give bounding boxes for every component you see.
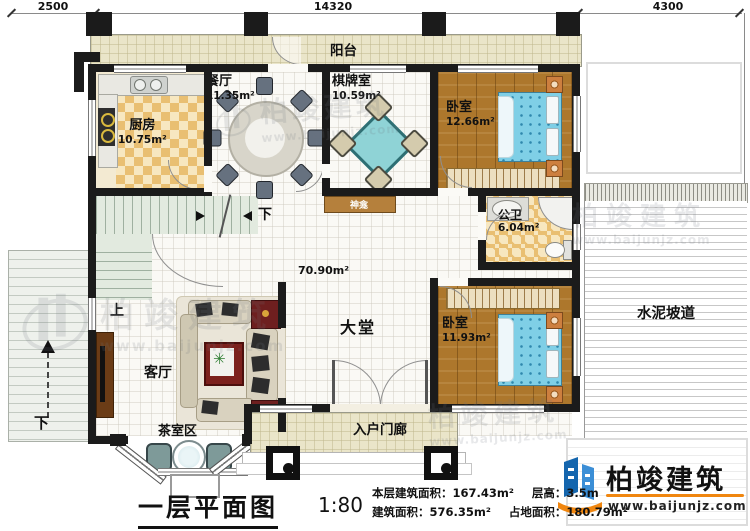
porch-column bbox=[424, 446, 458, 480]
porch-column-dot bbox=[283, 463, 294, 474]
total-area-label: 建筑面积： bbox=[372, 505, 430, 519]
wall bbox=[478, 262, 580, 270]
height-value: 3.5m bbox=[566, 486, 598, 500]
window bbox=[458, 65, 538, 73]
sofa-cushion bbox=[221, 302, 238, 317]
bedroom-bottom-label: 卧室 11.93m² bbox=[442, 316, 491, 344]
plan-stats: 本层建筑面积：167.43m² 层高：3.5m 建筑面积：576.35m² 占地… bbox=[372, 485, 628, 520]
sofa-chaise bbox=[180, 314, 198, 408]
floor-area-value: 167.43m² bbox=[453, 486, 514, 500]
entry-door-leaf-left bbox=[332, 360, 335, 408]
bed-sheet-fold bbox=[498, 96, 514, 158]
total-area-value: 576.35m² bbox=[430, 505, 491, 519]
hedge-strip bbox=[584, 183, 748, 203]
exterior-stairs-arrow-line bbox=[47, 352, 49, 418]
dimension-top-left: 2500 bbox=[28, 0, 78, 13]
door-gap bbox=[438, 188, 468, 196]
balcony-door-gap bbox=[268, 64, 308, 72]
mahjong-name: 棋牌室 bbox=[332, 74, 381, 90]
sofa-cushion bbox=[251, 355, 269, 372]
stairs-up-label: 上 bbox=[110, 300, 124, 320]
top-dimension-line bbox=[10, 13, 742, 14]
wall bbox=[322, 188, 438, 196]
kitchen-label: 厨房 10.75m² bbox=[118, 118, 167, 146]
dining-name: 餐厅 bbox=[206, 74, 255, 90]
sofa-cushion bbox=[201, 400, 218, 415]
kitchen-name: 厨房 bbox=[118, 118, 167, 134]
sofa-cushion bbox=[251, 377, 270, 394]
window bbox=[573, 224, 581, 250]
plan-scale: 1:80 bbox=[318, 493, 363, 517]
ramp-label: 水泥坡道 bbox=[608, 302, 724, 323]
wall bbox=[244, 404, 252, 444]
door-gap bbox=[204, 166, 212, 192]
wall bbox=[322, 64, 330, 164]
bed-pillow bbox=[546, 350, 559, 378]
stairs-tick-left bbox=[196, 211, 205, 221]
column bbox=[556, 12, 580, 36]
wall bbox=[430, 64, 438, 196]
column bbox=[244, 12, 268, 36]
mahjong-label: 棋牌室 10.59m² bbox=[332, 74, 381, 102]
window bbox=[88, 298, 96, 330]
dimension-top-right: 4300 bbox=[640, 0, 696, 13]
nightstand bbox=[546, 160, 563, 177]
window bbox=[452, 405, 544, 413]
dimension-top-center: 14320 bbox=[303, 0, 363, 13]
column bbox=[422, 12, 446, 36]
cabinet-ornament bbox=[262, 310, 269, 317]
bed-pillow bbox=[546, 128, 559, 156]
bedroom-top-name: 卧室 bbox=[446, 100, 495, 116]
tv bbox=[100, 346, 105, 402]
wall bbox=[88, 436, 128, 444]
nightstand bbox=[546, 76, 563, 93]
dining-chair bbox=[256, 181, 273, 199]
door-gap bbox=[478, 212, 486, 240]
stats-row-1: 本层建筑面积：167.43m² 层高：3.5m bbox=[372, 485, 628, 501]
wall-corner bbox=[74, 52, 84, 92]
hall-area: 70.90m² bbox=[298, 264, 349, 277]
kitchen-area: 10.75m² bbox=[118, 134, 167, 147]
window bbox=[260, 405, 312, 413]
bedroom-bottom-name: 卧室 bbox=[442, 316, 491, 332]
wall bbox=[204, 64, 212, 166]
dining-chair bbox=[256, 77, 273, 95]
porch-column-dot bbox=[441, 463, 452, 474]
brand-logo-url: www.baijunjz.com bbox=[608, 499, 747, 513]
sofa-cushion bbox=[195, 302, 213, 317]
bedroom-bottom-area: 11.93m² bbox=[442, 332, 491, 345]
window bbox=[350, 65, 406, 73]
entry-door-leaf-right bbox=[425, 360, 428, 408]
cement-ramp bbox=[584, 201, 747, 465]
nightstand bbox=[546, 386, 563, 403]
sofa-cushion bbox=[251, 333, 270, 351]
bedroom-top-label: 卧室 12.66m² bbox=[446, 100, 495, 128]
patio-outline-top-right bbox=[586, 62, 742, 174]
hall-label: 大堂 bbox=[340, 314, 376, 338]
mahjong-area: 10.59m² bbox=[332, 90, 381, 103]
sink-basin bbox=[134, 79, 146, 91]
tea-area-label: 茶室区 bbox=[158, 420, 197, 439]
bed-sheet-fold bbox=[498, 318, 514, 382]
plan-title: 一层平面图 bbox=[138, 488, 278, 529]
column bbox=[86, 12, 112, 36]
living-label: 客厅 bbox=[144, 362, 172, 382]
toilet bbox=[545, 242, 565, 258]
window bbox=[573, 318, 581, 376]
stove-burner bbox=[101, 113, 115, 127]
door-gap bbox=[438, 278, 468, 286]
floor-area-label: 本层建筑面积： bbox=[372, 486, 453, 500]
door-gap bbox=[322, 164, 330, 178]
porch-label: 入户门廊 bbox=[310, 418, 450, 438]
wall bbox=[88, 188, 212, 196]
nightstand bbox=[546, 312, 563, 329]
window bbox=[88, 100, 96, 156]
window bbox=[114, 65, 186, 73]
dining-area: 11.35m² bbox=[206, 90, 255, 103]
stove-burner bbox=[101, 129, 115, 143]
bedroom-top-area: 12.66m² bbox=[446, 116, 495, 129]
land-area-value: 180.79m² bbox=[566, 505, 627, 519]
porch-column bbox=[266, 446, 300, 480]
stairs-tick-right bbox=[243, 211, 252, 221]
stats-row-2: 建筑面积：576.35m² 占地面积：180.79m² bbox=[372, 504, 628, 520]
height-label: 层高： bbox=[532, 486, 567, 500]
entry-door-gap bbox=[330, 404, 430, 412]
balcony-label: 阳台 bbox=[330, 39, 357, 59]
wall bbox=[430, 278, 438, 412]
dining-label: 餐厅 11.35m² bbox=[206, 74, 255, 102]
plant-icon: ✳ bbox=[213, 350, 226, 368]
exterior-stairs-arrow-head bbox=[41, 340, 55, 353]
sink-basin bbox=[150, 79, 162, 91]
dim-tick bbox=[735, 8, 744, 17]
land-area-label: 占地面积： bbox=[509, 505, 567, 519]
exterior-stairs-down-label: 下 bbox=[34, 412, 49, 433]
floor-plan-canvas: 2500 14320 4300 13180 水泥坡道 下 阳台 下 上 厨房 1 bbox=[0, 0, 750, 531]
stairs-landing bbox=[96, 234, 152, 244]
window bbox=[573, 96, 581, 152]
shrine-label: 神龛 bbox=[324, 198, 394, 211]
dining-table-center bbox=[245, 118, 285, 158]
wall bbox=[278, 282, 286, 328]
tv-cabinet bbox=[96, 332, 114, 418]
wall bbox=[278, 398, 286, 432]
stairs-down-label: 下 bbox=[258, 204, 272, 224]
stairs-top-run bbox=[96, 196, 258, 234]
bed-pillow bbox=[546, 96, 559, 124]
